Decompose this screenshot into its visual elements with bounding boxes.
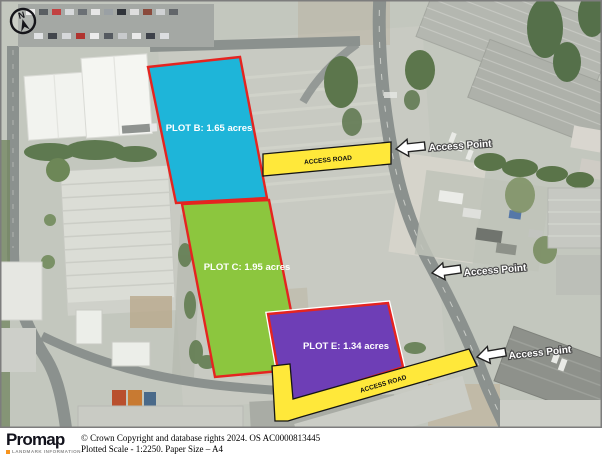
right-warehouse (548, 188, 602, 248)
copyright-line: © Crown Copyright and database rights 20… (81, 433, 320, 444)
map-area: PLOT B: 1.65 acres PLOT C: 1.95 acres PL… (0, 0, 602, 428)
site-plan-map: PLOT B: 1.65 acres PLOT C: 1.95 acres PL… (0, 0, 602, 428)
map-credits: © Crown Copyright and database rights 20… (81, 433, 320, 455)
scale-line: Plotted Scale - 1:2250. Paper Size – A4 (81, 444, 320, 455)
crosswalk (384, 92, 397, 98)
plot-e-label: PLOT E: 1.34 acres (303, 341, 389, 352)
plot-c-label: PLOT C: 1.95 acres (204, 262, 291, 273)
landmark-logo-icon (6, 450, 10, 454)
promap-logo: Promap LANDMARK INFORMATION (6, 432, 78, 454)
plot-b-label: PLOT B: 1.65 acres (166, 123, 253, 134)
tree (46, 158, 70, 182)
parking-lot (18, 4, 214, 47)
promap-plan-page: PLOT B: 1.65 acres PLOT C: 1.95 acres PL… (0, 0, 602, 461)
footer: Promap LANDMARK INFORMATION © Crown Copy… (0, 429, 602, 461)
large-warehouse-building (60, 165, 175, 315)
landmark-tagline: LANDMARK INFORMATION (12, 449, 81, 454)
dirt-patch (130, 296, 172, 328)
promap-brand-wordmark: Promap (6, 432, 78, 447)
